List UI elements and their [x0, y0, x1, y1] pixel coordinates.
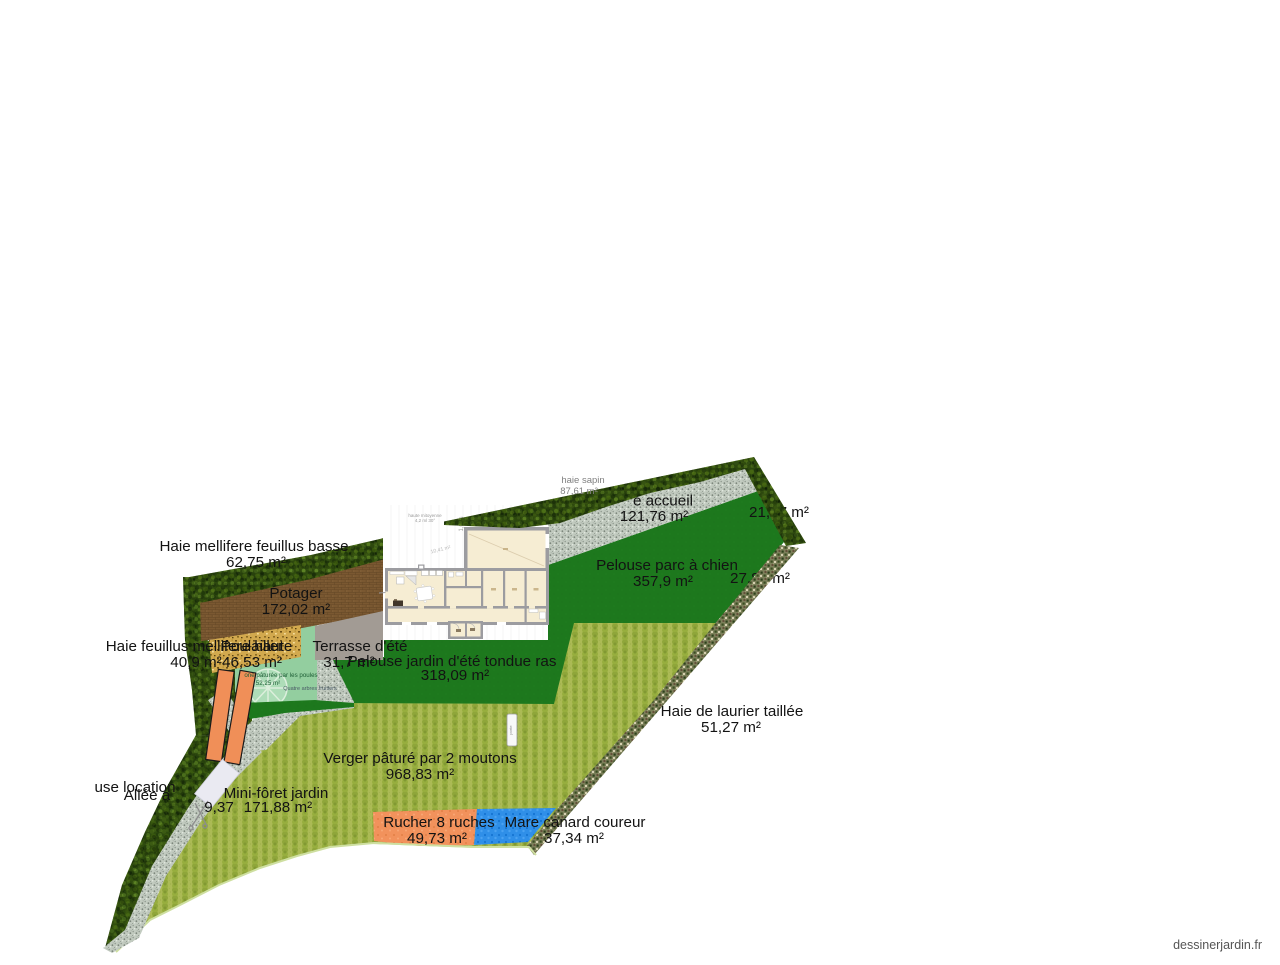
- svg-text:62,75 m²: 62,75 m²: [226, 554, 286, 571]
- svg-text:4,2 ml 30°: 4,2 ml 30°: [415, 518, 436, 523]
- svg-text:Allée a: Allée a: [124, 787, 171, 804]
- svg-text:171,88 m²: 171,88 m²: [244, 799, 312, 816]
- svg-text:172,02 m²: 172,02 m²: [262, 601, 330, 618]
- svg-text:e accueil: e accueil: [633, 493, 693, 510]
- svg-text:40,9 m²: 40,9 m²: [170, 654, 222, 671]
- svg-text:46,53 m²: 46,53 m²: [222, 654, 282, 671]
- svg-text:9,37: 9,37: [204, 799, 234, 816]
- svg-text:51,27 m²: 51,27 m²: [701, 719, 761, 736]
- svg-text:52,25 m²: 52,25 m²: [256, 680, 280, 687]
- svg-text:one pâturée par les poules: one pâturée par les poules: [244, 672, 317, 679]
- svg-text:49,73 m²: 49,73 m²: [407, 830, 467, 847]
- svg-text:Pelouse parc à chien: Pelouse parc à chien: [596, 557, 738, 574]
- svg-text:Poulailler: Poulailler: [221, 638, 283, 655]
- svg-text:357,9 m²: 357,9 m²: [633, 573, 693, 590]
- svg-text:porte: porte: [508, 725, 513, 735]
- svg-text:dessinerjardin.fr: dessinerjardin.fr: [1173, 938, 1262, 952]
- svg-text:318,09 m²: 318,09 m²: [421, 667, 489, 684]
- svg-text:haie sapin: haie sapin: [561, 475, 604, 486]
- svg-text:87,61 m²: 87,61 m²: [560, 486, 598, 497]
- svg-text:Rucher 8 ruches: Rucher 8 ruches: [383, 814, 495, 831]
- svg-text:968,83 m²: 968,83 m²: [386, 766, 454, 783]
- svg-text:Quatre arbres fruitiers: Quatre arbres fruitiers: [283, 686, 337, 692]
- svg-text:Haie mellifere feuillus basse: Haie mellifere feuillus basse: [159, 538, 348, 555]
- svg-text:Mare canard coureur: Mare canard coureur: [505, 814, 646, 831]
- svg-text:Verger pâturé par 2 moutons: Verger pâturé par 2 moutons: [323, 750, 517, 767]
- svg-text:37,34 m²: 37,34 m²: [544, 830, 604, 847]
- svg-text:121,76 m²: 121,76 m²: [620, 508, 688, 525]
- svg-text:Haie de laurier taillée: Haie de laurier taillée: [661, 703, 804, 720]
- svg-text:Potager: Potager: [269, 585, 322, 602]
